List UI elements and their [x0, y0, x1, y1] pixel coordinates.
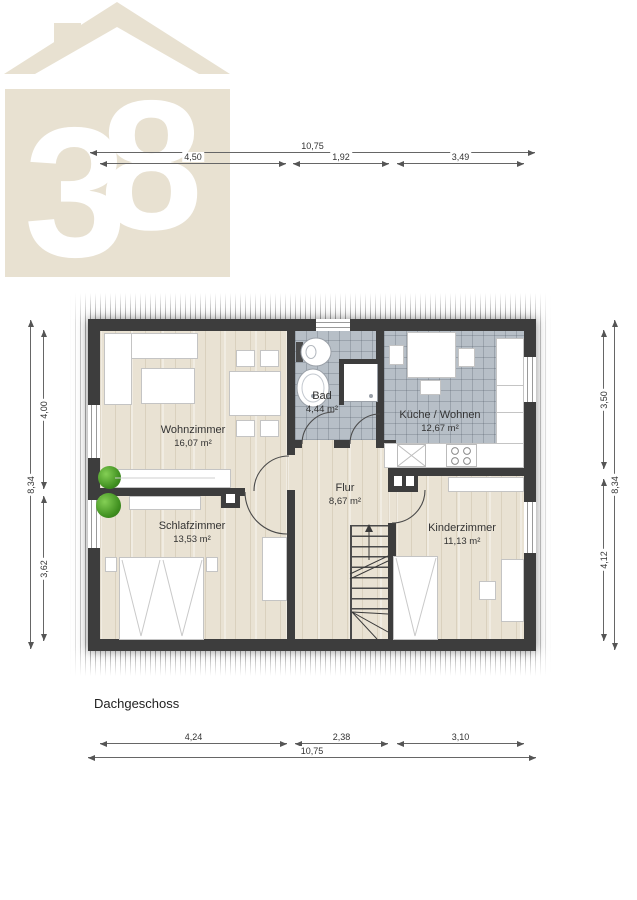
window-bad-top	[316, 319, 350, 331]
room-area: 12,67 m²	[380, 423, 500, 435]
arrow-down-icon	[28, 642, 34, 649]
stove	[446, 444, 477, 467]
dining-table	[229, 371, 281, 416]
room-label-schlafzimmer: Schlafzimmer 13,53 m²	[132, 520, 252, 546]
kitchen-counter-right	[496, 338, 524, 445]
room-name: Bad	[284, 390, 360, 404]
dim-value: 8,34	[610, 474, 620, 496]
arrow-down-icon	[601, 462, 607, 469]
arrow-right-icon	[381, 741, 388, 747]
arrow-right-icon	[382, 161, 389, 167]
arrow-right-icon	[528, 150, 535, 156]
logo-digit-8: 8	[100, 63, 203, 269]
dim-value: 3,10	[450, 732, 472, 742]
wall-bad-flur-b	[334, 440, 350, 448]
counter-divider-1	[497, 385, 523, 386]
chimney-flue-2	[406, 476, 414, 486]
arrow-up-icon	[601, 330, 607, 337]
wardrobe-tall	[262, 537, 287, 601]
sofa-vertical	[104, 333, 132, 405]
arrow-left-icon	[397, 161, 404, 167]
dining-chair-1	[236, 350, 255, 367]
kitchen-table	[407, 332, 456, 378]
room-label-bad: Bad 4,44 m²	[284, 390, 360, 416]
room-name: Wohnzimmer	[133, 424, 253, 438]
dim-right-seg1: 3,50	[603, 330, 604, 469]
dim-left-seg1: 4,00	[43, 330, 44, 489]
dim-left-seg2: 3,62	[43, 496, 44, 641]
dim-value: 4,12	[599, 549, 609, 571]
dining-chair-2	[260, 350, 279, 367]
arrow-left-icon	[293, 161, 300, 167]
arrow-right-icon	[517, 161, 524, 167]
nightstand-2	[206, 557, 218, 572]
arrow-left-icon	[397, 741, 404, 747]
nightstand-1	[105, 557, 117, 572]
dim-top-seg3: 3,49	[397, 163, 524, 164]
arrow-up-icon	[41, 330, 47, 337]
room-label-wohnzimmer: Wohnzimmer 16,07 m²	[133, 424, 253, 450]
room-label-flur: Flur 8,67 m²	[305, 482, 385, 508]
dim-bottom-total: 10,75	[88, 757, 536, 758]
room-label-kinderzimmer: Kinderzimmer 11,13 m²	[402, 522, 522, 548]
double-bed	[119, 557, 204, 640]
dim-value: 4,50	[182, 152, 204, 162]
dining-chair-4	[260, 420, 279, 437]
dim-bottom-seg1: 4,24	[100, 743, 287, 744]
dim-value: 4,00	[39, 399, 49, 421]
pillar-core	[226, 494, 235, 503]
arrow-down-icon	[41, 482, 47, 489]
dim-value: 10,75	[299, 746, 326, 756]
arrow-up-icon	[41, 496, 47, 503]
arrow-right-icon	[529, 755, 536, 761]
arrow-left-icon	[100, 741, 107, 747]
room-area: 13,53 m²	[132, 534, 252, 546]
dim-value: 10,75	[299, 141, 326, 151]
kitchen-chair-3	[420, 380, 441, 395]
shower-wall-top	[339, 359, 384, 364]
window-kueche-right	[524, 357, 536, 402]
window-wohnzimmer-left	[88, 405, 100, 458]
kitchen-chair-1	[389, 345, 404, 365]
plant-icon-2	[96, 493, 121, 518]
room-area: 16,07 m²	[133, 438, 253, 450]
room-area: 4,44 m²	[284, 404, 360, 416]
dim-value: 4,24	[183, 732, 205, 742]
arrow-left-icon	[90, 150, 97, 156]
kitchen-chair-2	[458, 348, 475, 367]
company-logo-house-icon: 3 8	[2, 0, 234, 282]
dim-value: 3,50	[599, 389, 609, 411]
room-name: Küche / Wohnen	[380, 409, 500, 423]
shelf	[448, 477, 524, 492]
plant-icon-1	[98, 466, 121, 489]
arrow-down-icon	[612, 643, 618, 650]
counter-divider-2	[497, 412, 523, 413]
single-bed	[393, 556, 438, 640]
wall-flur-schlafzimmer-v	[287, 490, 295, 639]
dim-value: 2,38	[331, 732, 353, 742]
arrow-right-icon	[517, 741, 524, 747]
dim-right-total: 8,34	[614, 320, 615, 650]
dim-bottom-seg2: 2,38	[295, 743, 388, 744]
sideboard	[104, 469, 231, 488]
floorplan-page: 3 8	[0, 0, 637, 900]
dim-top-seg1: 4,50	[100, 163, 286, 164]
wall-bad-flur-a	[287, 440, 302, 448]
room-label-kueche: Küche / Wohnen 12,67 m²	[380, 409, 500, 435]
room-area: 8,67 m²	[305, 496, 385, 508]
arrow-right-icon	[280, 741, 287, 747]
arrow-up-icon	[601, 479, 607, 486]
dim-top-seg2: 1,92	[293, 163, 389, 164]
arrow-left-icon	[100, 161, 107, 167]
arrow-right-icon	[279, 161, 286, 167]
window-kinderzimmer-right	[524, 502, 536, 553]
arrow-up-icon	[28, 320, 34, 327]
dim-value: 1,92	[330, 152, 352, 162]
hatch-fade-left	[65, 293, 90, 676]
room-name: Kinderzimmer	[402, 522, 522, 536]
arrow-up-icon	[612, 320, 618, 327]
arrow-left-icon	[88, 755, 95, 761]
room-name: Flur	[305, 482, 385, 496]
desk	[501, 559, 524, 622]
wardrobe-small	[129, 496, 201, 510]
floor-title: Dachgeschoss	[94, 696, 179, 711]
room-name: Schlafzimmer	[132, 520, 252, 534]
coffee-table	[141, 368, 195, 404]
dim-value: 3,62	[39, 558, 49, 580]
dim-bottom-seg3: 3,10	[397, 743, 524, 744]
dim-right-seg2: 4,12	[603, 479, 604, 641]
kitchen-sink	[397, 444, 426, 467]
dim-value: 3,49	[450, 152, 472, 162]
dim-value: 8,34	[26, 474, 36, 496]
dim-left-total: 8,34	[30, 320, 31, 649]
arrow-down-icon	[601, 634, 607, 641]
arrow-down-icon	[41, 634, 47, 641]
room-area: 11,13 m²	[402, 536, 522, 548]
desk-chair	[479, 581, 496, 600]
toilet-base	[296, 342, 303, 362]
staircase-left-edge	[350, 525, 352, 639]
chimney-flue-1	[394, 476, 402, 486]
staircase-steps	[350, 525, 388, 618]
